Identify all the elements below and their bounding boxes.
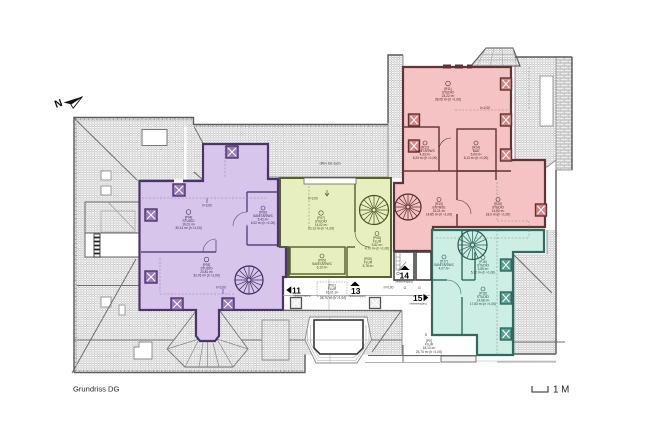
svg-text:5,32 m² (h >1,00): 5,32 m² (h >1,00) bbox=[471, 271, 496, 275]
svg-text:1 M: 1 M bbox=[553, 385, 569, 396]
svg-text:18,0 m² (h >1,00): 18,0 m² (h >1,00) bbox=[486, 213, 511, 217]
svg-text:offen bis dach: offen bis dach bbox=[319, 162, 340, 166]
svg-text:h=2,00: h=2,00 bbox=[308, 197, 318, 201]
svg-text:17,83 m² (h >1,00): 17,83 m² (h >1,00) bbox=[470, 302, 496, 306]
svg-text:30,14 m² (h >1,00): 30,14 m² (h >1,00) bbox=[175, 226, 201, 230]
svg-text:Grundriss DG: Grundriss DG bbox=[73, 385, 120, 394]
svg-text:16,01 m²: 16,01 m² bbox=[326, 291, 339, 295]
svg-text:4,07 m²: 4,07 m² bbox=[439, 267, 450, 271]
svg-text:15: 15 bbox=[413, 293, 423, 303]
svg-text:32,76 m² (h >1,00): 32,76 m² (h >1,00) bbox=[193, 274, 219, 278]
svg-text:h=2,00: h=2,00 bbox=[202, 204, 212, 208]
svg-text:13: 13 bbox=[351, 286, 361, 296]
svg-text:G: G bbox=[425, 333, 428, 337]
svg-text:14: 14 bbox=[400, 271, 410, 281]
svg-text:G: G bbox=[404, 286, 407, 290]
svg-text:4,70 m² (h >1,00): 4,70 m² (h >1,00) bbox=[365, 247, 390, 251]
svg-text:14,85 m² (h >1,00): 14,85 m² (h >1,00) bbox=[426, 213, 452, 217]
svg-text:6,10 m²: 6,10 m² bbox=[317, 266, 328, 270]
svg-text:5,76 m²: 5,76 m² bbox=[363, 264, 374, 268]
svg-text:h=0,00: h=0,00 bbox=[384, 285, 394, 289]
svg-text:h=2,00: h=2,00 bbox=[480, 106, 490, 110]
svg-text:6,23 m² (h >1,00): 6,23 m² (h >1,00) bbox=[413, 156, 438, 160]
svg-text:20,13 m² (h >1,00): 20,13 m² (h >1,00) bbox=[308, 227, 334, 231]
svg-text:h=2,00: h=2,00 bbox=[216, 286, 226, 290]
svg-text:28,05 m² (h >1,00): 28,05 m² (h >1,00) bbox=[435, 98, 461, 102]
svg-text:6,13 m² (h >1,00): 6,13 m² (h >1,00) bbox=[464, 156, 489, 160]
svg-text:11: 11 bbox=[292, 286, 301, 296]
svg-text:6,02 m² (h >1,00): 6,02 m² (h >1,00) bbox=[251, 221, 276, 225]
svg-text:26,74 m² (h >1,00): 26,74 m² (h >1,00) bbox=[416, 350, 442, 354]
svg-text:G: G bbox=[418, 286, 421, 290]
